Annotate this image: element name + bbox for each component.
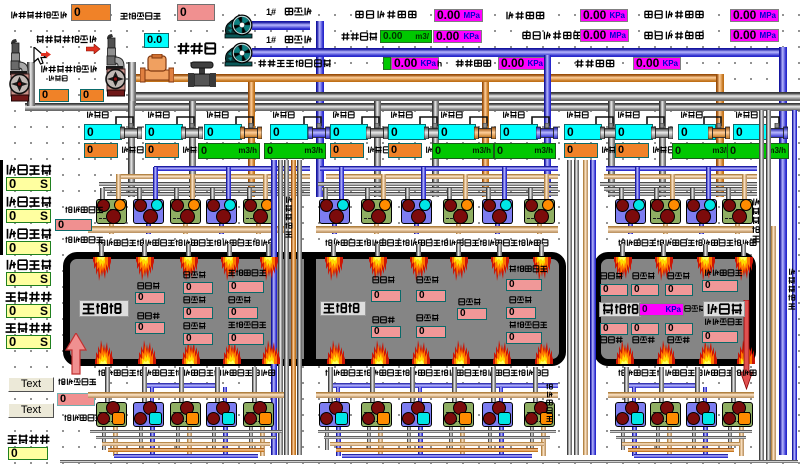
svg-text:h: h bbox=[437, 59, 442, 69]
svg-text:1#: 1# bbox=[266, 35, 276, 45]
svg-text:1#: 1# bbox=[266, 7, 276, 17]
